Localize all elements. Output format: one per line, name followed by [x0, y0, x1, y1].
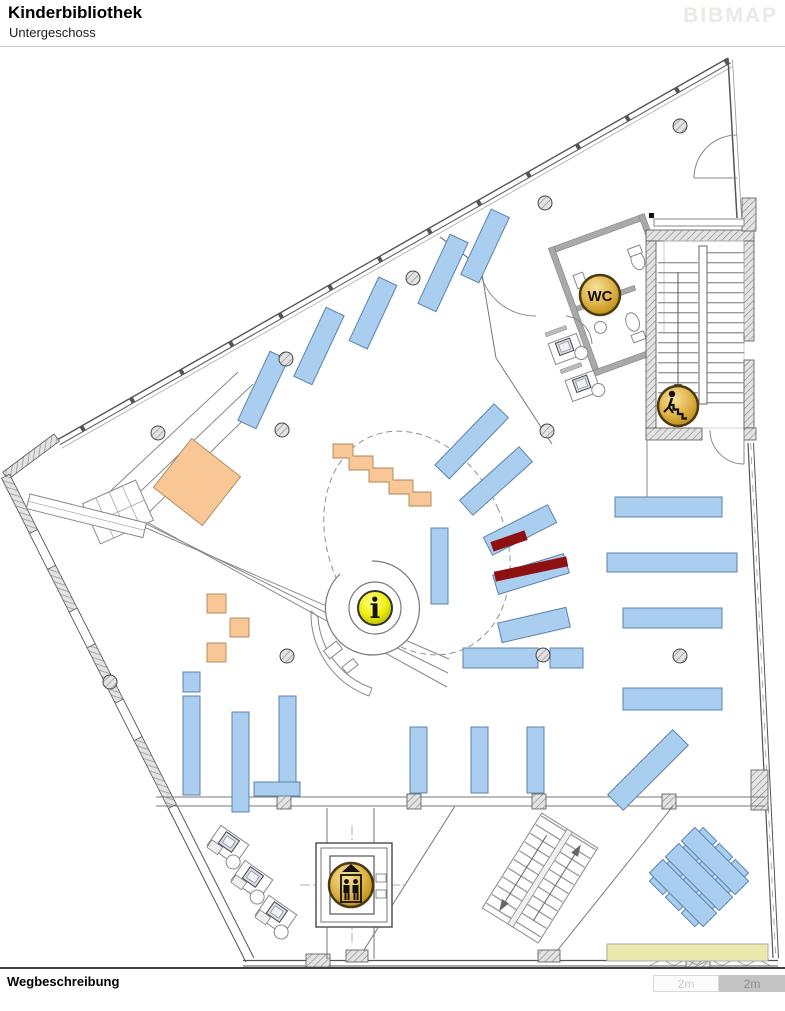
info-icon-label: i [370, 592, 381, 625]
scale-bar: 2m 2m [653, 975, 785, 992]
stairs-down-icon[interactable] [658, 386, 698, 426]
brand-logo: BIBMAP [683, 4, 778, 28]
bibmap-page: WC i Kinderbibliothek Untergeschoss BIBM… [0, 0, 785, 1011]
header: Kinderbibliothek Untergeschoss BIBMAP [0, 0, 785, 47]
orange-steps [333, 444, 431, 506]
elevator-icon[interactable] [329, 863, 373, 907]
scale-segment-left: 2m [653, 975, 719, 992]
computer-stations [204, 825, 300, 941]
lower-staircase [482, 813, 597, 943]
info-desk [311, 561, 419, 696]
play-area-furniture [153, 438, 249, 662]
info-icon[interactable]: i [358, 591, 392, 625]
footer-label[interactable]: Wegbeschreibung [7, 974, 119, 989]
floor-plan-svg: WC i [0, 0, 785, 1011]
page-title: Kinderbibliothek [8, 3, 142, 23]
page-subtitle: Untergeschoss [9, 25, 96, 40]
wc-icon-label: WC [588, 288, 613, 305]
footer: Wegbeschreibung 2m 2m [0, 967, 785, 1011]
computer-station [565, 369, 606, 406]
stairwell [646, 198, 756, 497]
window-bench [607, 944, 768, 961]
wc-icon[interactable]: WC [580, 275, 620, 315]
scale-segment-right: 2m [719, 975, 785, 992]
